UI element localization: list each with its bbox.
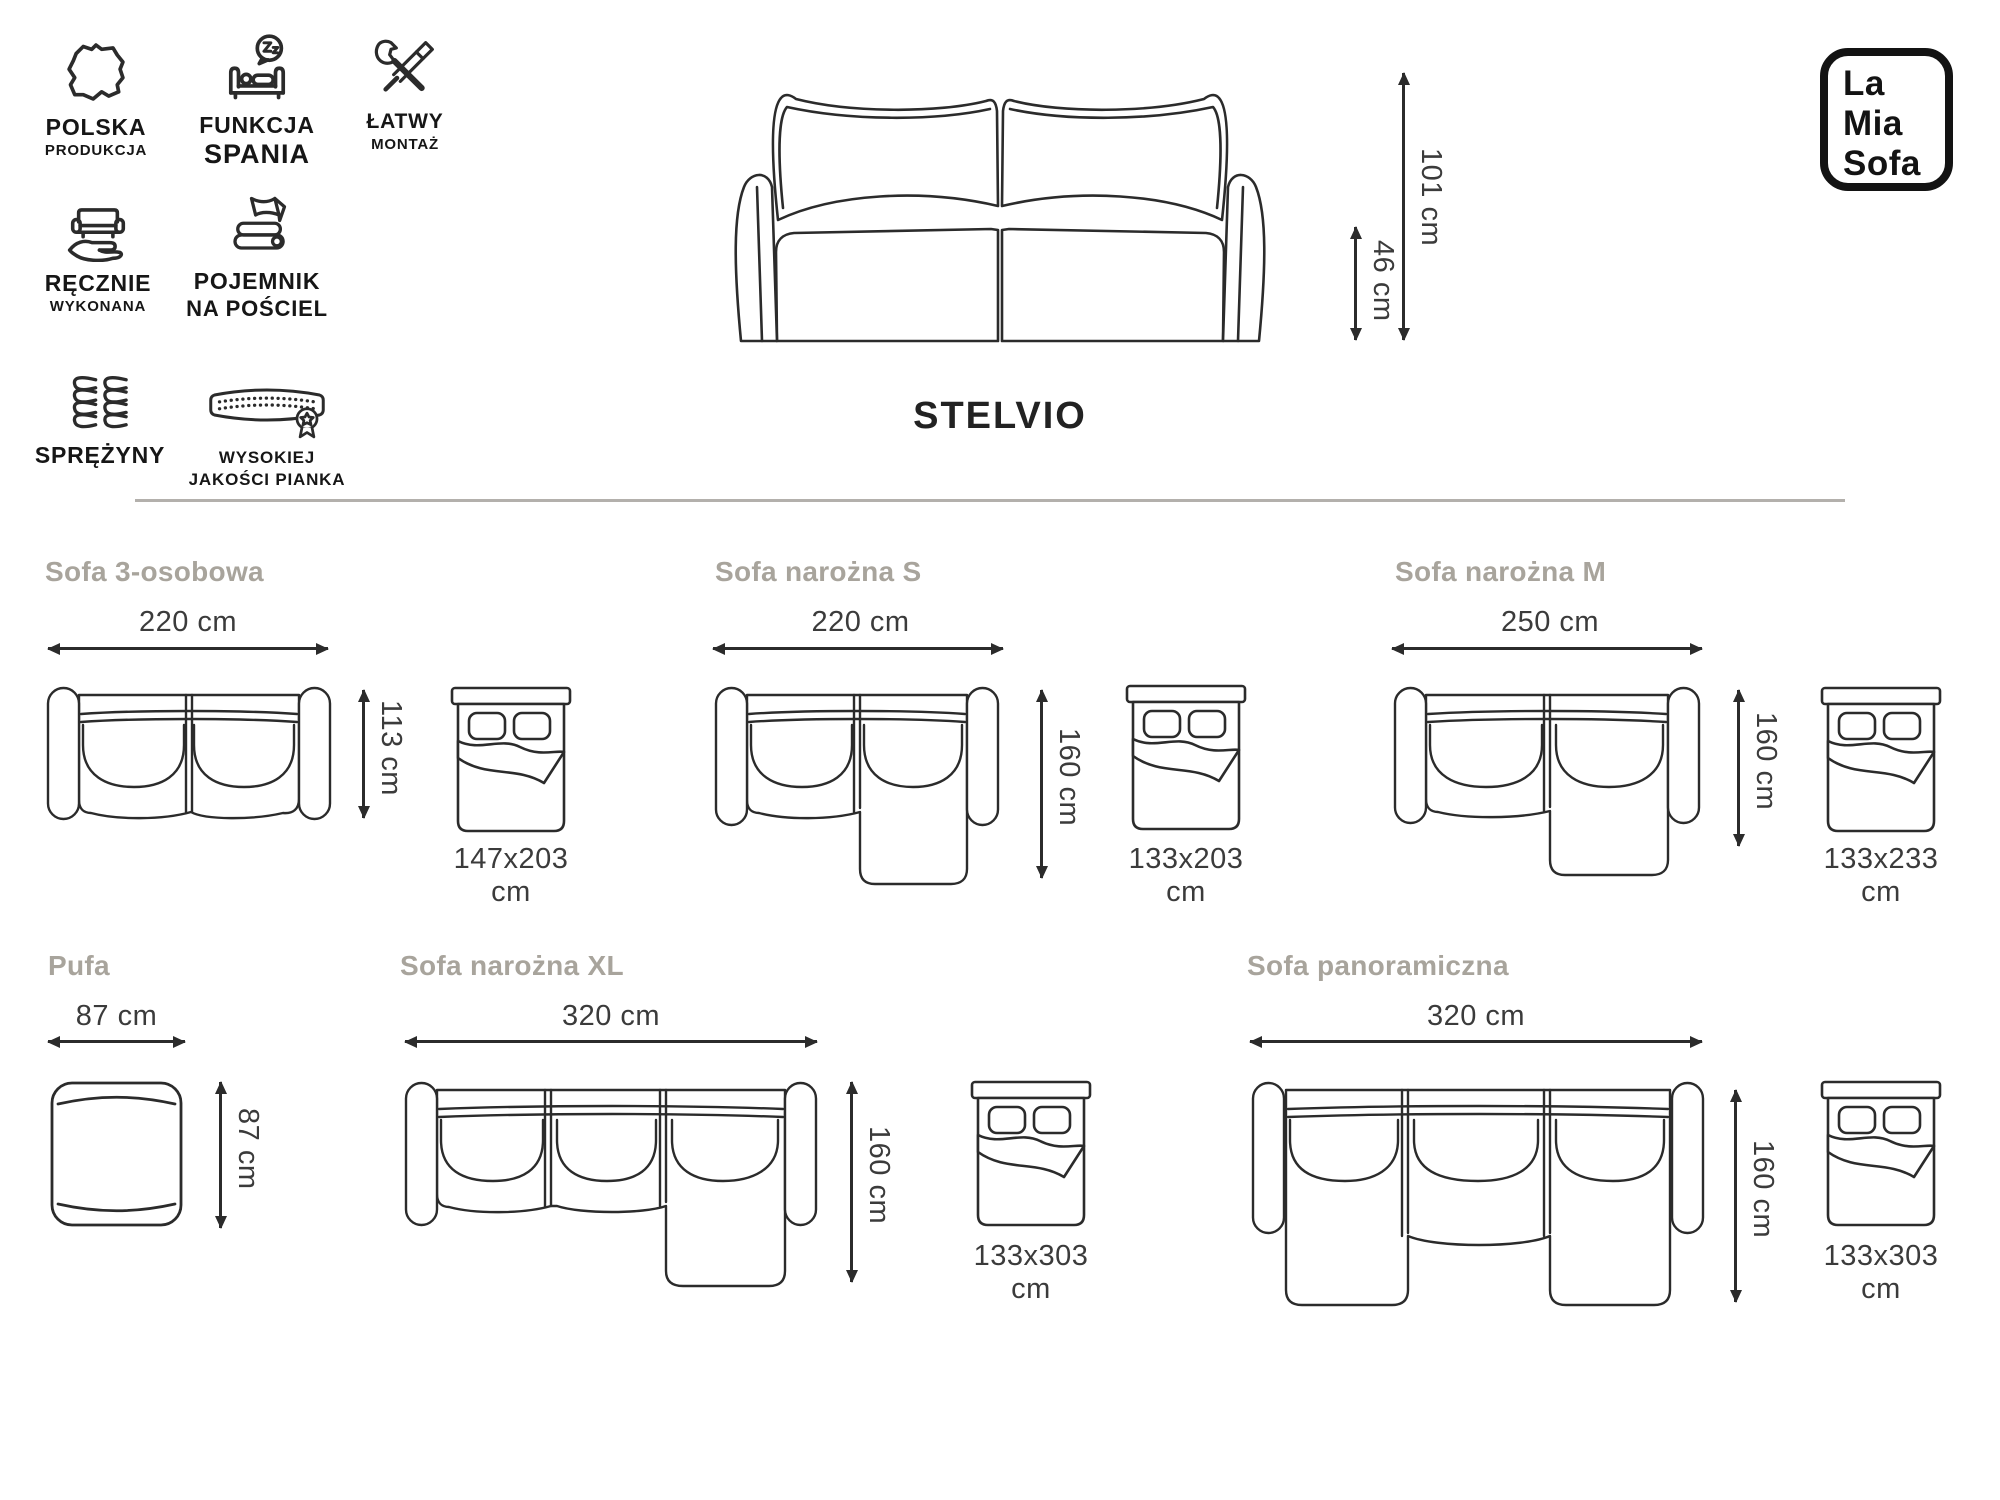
sleep-function-icon [220,34,294,104]
feature-latwy-montaz: ŁATWY MONTAŻ [330,38,480,153]
sofa-top-view [713,683,1003,888]
sofa-top-view [1250,1078,1706,1310]
feature-sublabel: NA POŚCIEL [186,296,328,321]
feature-sublabel: WYKONANA [50,298,146,315]
product-name: STELVIO [750,395,1250,438]
depth-dimension-label: 113 cm [374,700,407,796]
bedding-storage-icon [224,192,290,260]
feature-sublabel: MONTAŻ [371,136,439,153]
depth-dimension-arrow [850,1082,853,1282]
depth-dimension-arrow [1040,690,1043,878]
total-height-arrow [1402,73,1405,340]
feature-label: ŁATWY [366,110,443,134]
width-dimension-arrow [48,1040,185,1043]
depth-dimension-label: 160 cm [862,1126,895,1224]
easy-assembly-icon [373,38,437,102]
depth-dimension-label: 160 cm [1749,712,1782,810]
variant-title: Pufa [48,950,110,982]
variant-title: Sofa narożna S [715,556,921,588]
feature-recznie-wykonana: RĘCZNIE WYKONANA [23,198,173,316]
feature-label: RĘCZNIE [45,270,152,296]
variant-title: Sofa panoramiczna [1247,950,1509,982]
bed-size-label: 147x203 cm [431,843,591,909]
width-dimension-label: 87 cm [48,1000,185,1033]
springs-icon [71,372,129,434]
width-dimension-label: 250 cm [1395,606,1705,639]
bed-top-view-icon [1818,1076,1944,1232]
feature-sublabel: SPANIA [204,139,310,170]
logo-line: Mia [1843,104,1945,144]
depth-dimension-arrow [1737,690,1740,846]
variant-title: Sofa narożna XL [400,950,624,982]
width-dimension-label: 320 cm [1250,1000,1702,1033]
seat-height-label: 46 cm [1366,240,1399,321]
feature-wysokiej-jakosci-pianka: WYSOKIEJ JAKOŚCI PIANKA [187,380,347,489]
depth-dimension-arrow [1734,1090,1737,1302]
bed-top-view-icon [968,1076,1094,1232]
feature-label: POJEMNIK [194,268,321,294]
variant-title: Sofa narożna M [1395,556,1606,588]
bed-size-label: 133x233 cm [1801,843,1961,909]
width-dimension-label: 320 cm [405,1000,817,1033]
poland-map-icon [62,38,130,106]
width-dimension-arrow [48,647,328,650]
sofa-top-view [45,683,333,825]
bed-size-label: 133x203 cm [1106,843,1266,909]
bed-top-view-icon [1818,682,1944,838]
feature-label: FUNKCJA [199,112,315,138]
width-dimension-arrow [1392,647,1702,650]
logo-line: La [1843,64,1945,104]
width-dimension-arrow [405,1040,817,1043]
feature-polska-produkcja: POLSKA PRODUKCJA [21,38,171,160]
handmade-icon [62,198,134,262]
high-quality-foam-icon [207,380,327,440]
pouf-top-view [48,1078,185,1230]
bed-size-label: 133x303 cm [951,1240,1111,1306]
sofa-top-view [403,1078,819,1290]
width-dimension-label: 220 cm [718,606,1003,639]
bed-top-view-icon [1123,680,1249,836]
feature-label: POLSKA [46,114,147,140]
bed-top-view-icon [448,682,574,838]
width-dimension-label: 220 cm [48,606,328,639]
bed-size-label: 133x303 cm [1801,1240,1961,1306]
feature-label: SPRĘŻYNY [35,442,165,468]
depth-dimension-label: 160 cm [1052,728,1085,826]
logo-line: Sofa [1843,144,1945,184]
total-height-label: 101 cm [1414,148,1447,246]
spec-sheet: POLSKA PRODUKCJA FUNKCJA [0,0,2000,1500]
divider-line [135,499,1845,502]
seat-height-arrow [1354,227,1357,340]
feature-label: WYSOKIEJ [219,448,315,468]
depth-dimension-arrow [362,690,365,818]
hero-sofa-front-view [685,52,1315,344]
variant-title: Sofa 3-osobowa [45,556,264,588]
feature-sublabel: PRODUKCJA [45,142,147,159]
width-dimension-arrow [1250,1040,1702,1043]
sofa-top-view [1392,683,1702,879]
feature-pojemnik-na-posciel: POJEMNIK NA POŚCIEL [182,192,332,322]
brand-logo: La Mia Sofa [1820,48,1953,191]
feature-sublabel: JAKOŚCI PIANKA [189,470,346,490]
depth-dimension-label: 160 cm [1746,1140,1779,1238]
feature-sprezyny: SPRĘŻYNY [25,372,175,468]
feature-funkcja-spania: FUNKCJA SPANIA [182,34,332,170]
depth-dimension-label: 87 cm [231,1108,264,1189]
depth-dimension-arrow [219,1082,222,1228]
width-dimension-arrow [713,647,1003,650]
